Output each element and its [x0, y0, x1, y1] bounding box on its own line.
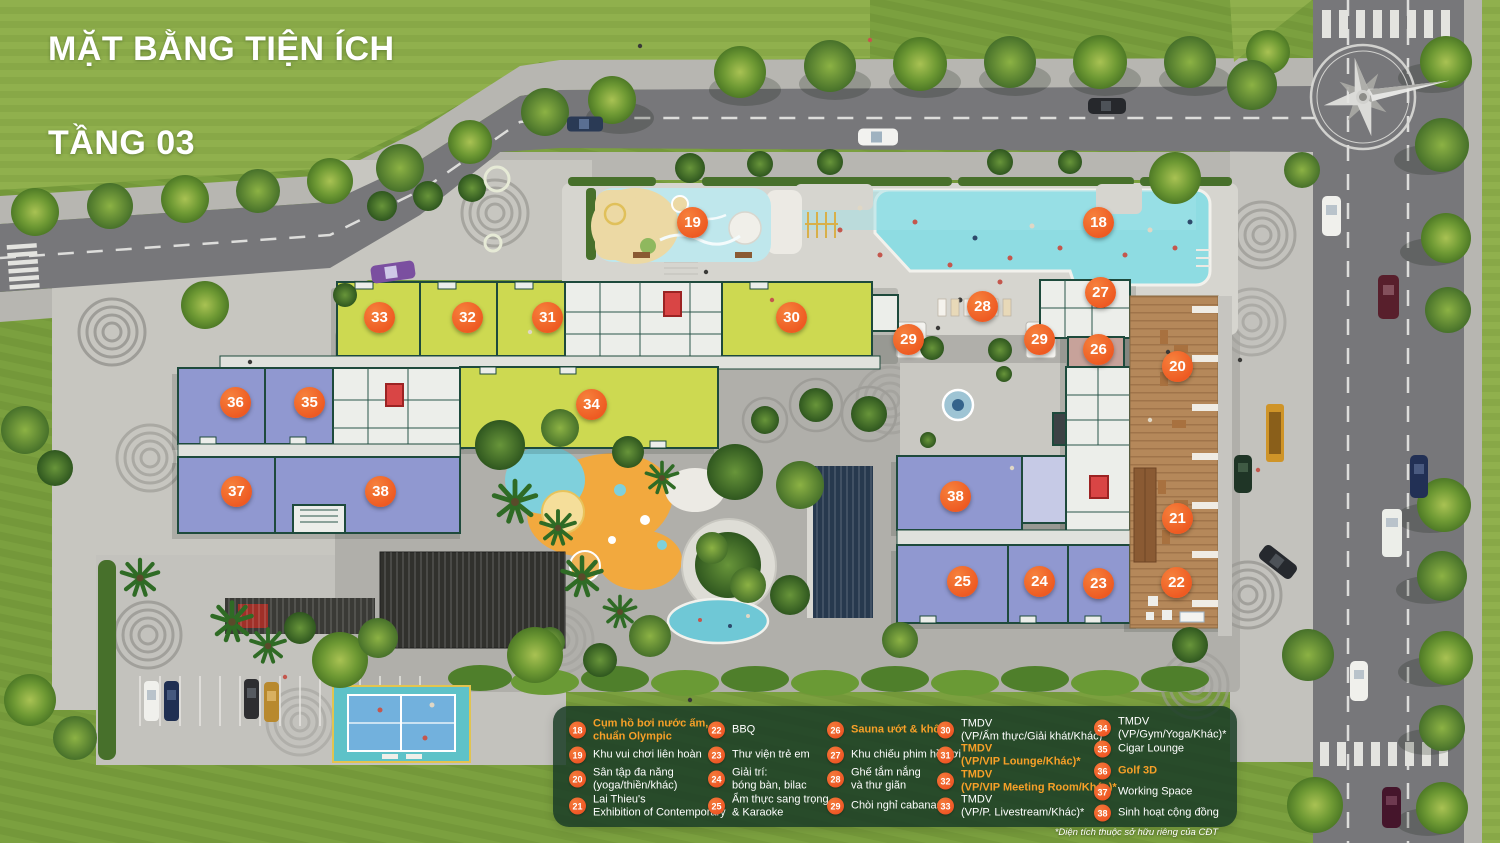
- legend-item-21: 21Lai Thieu'sExhibition of Contemporary: [569, 794, 726, 819]
- legend-label: Giải trí:bóng bàn, bilac: [732, 767, 807, 792]
- plan-marker-30: 30: [776, 302, 807, 333]
- legend-number-badge: 27: [827, 747, 844, 764]
- legend-number-badge: 22: [708, 722, 725, 739]
- plan-marker-25: 25: [947, 566, 978, 597]
- legend-number-badge: 38: [1094, 805, 1111, 822]
- legend-label: TMDV(VP/VIP Lounge/Khác)*: [961, 743, 1081, 768]
- legend-item-24: 24Giải trí:bóng bàn, bilac: [708, 767, 807, 792]
- legend-label: Ẩm thực sang trọng& Karaoke: [732, 794, 829, 819]
- legend-item-38: 38Sinh hoạt cộng đồng: [1094, 805, 1219, 822]
- siteplan-poster: MẶT BẰNG TIỆN ÍCH TẦNG 03 19182728292926…: [0, 0, 1500, 843]
- core-west: [565, 282, 722, 358]
- corridor-east: [897, 530, 1130, 545]
- legend-label: Khu vui chơi liên hoàn: [593, 749, 702, 762]
- legend-item-18: 18Cụm hồ bơi nước ấm,chuẩn Olympic: [569, 718, 708, 743]
- legend-number-badge: 21: [569, 798, 586, 815]
- plan-marker-36: 36: [220, 387, 251, 418]
- legend-item-20: 20Sân tập đa năng(yoga/thiền/khác): [569, 767, 677, 792]
- bus: [1266, 404, 1284, 462]
- page-title: MẶT BẰNG TIỆN ÍCH TẦNG 03: [48, 26, 395, 167]
- plan-marker-28: 28: [967, 291, 998, 322]
- plan-marker-23: 23: [1083, 568, 1114, 599]
- plan-marker-27: 27: [1085, 277, 1116, 308]
- plan-marker-22: 22: [1161, 567, 1192, 598]
- legend-number-badge: 32: [937, 773, 954, 790]
- legend-number-badge: 29: [827, 798, 844, 815]
- legend-item-23: 23Thư viện trẻ em: [708, 747, 810, 764]
- legend-label: Golf 3D: [1118, 765, 1157, 778]
- legend-item-22: 22BBQ: [708, 722, 755, 739]
- legend-label: Lai Thieu'sExhibition of Contemporary: [593, 794, 726, 819]
- elevator-red: [1090, 476, 1108, 498]
- legend-item-26: 26Sauna ướt & khô: [827, 722, 940, 739]
- legend-footnote: *Diện tích thuộc sở hữu riêng của CĐT: [950, 827, 1218, 838]
- tennis-court: [333, 686, 470, 762]
- plan-marker-31: 31: [532, 302, 563, 333]
- legend-number-badge: 36: [1094, 763, 1111, 780]
- legend-label: TMDV(VP/Ẩm thực/Giải khát/Khác)*: [961, 718, 1107, 743]
- legend-label: TMDV(VP/Gym/Yoga/Khác)*: [1118, 716, 1226, 741]
- plan-marker-18: 18: [1083, 207, 1114, 238]
- legend-number-badge: 35: [1094, 741, 1111, 758]
- plan-marker-33: 33: [364, 302, 395, 333]
- legend-number-badge: 37: [1094, 784, 1111, 801]
- plan-marker-37: 37: [221, 476, 252, 507]
- legend-item-32: 32TMDV(VP/VIP Meeting Room/Khác)*: [937, 769, 1117, 794]
- legend-label: Sauna ướt & khô: [851, 724, 940, 737]
- legend-number-badge: 20: [569, 771, 586, 788]
- legend-item-34: 34TMDV(VP/Gym/Yoga/Khác)*: [1094, 716, 1226, 741]
- legend-item-35: 35Cigar Lounge: [1094, 741, 1184, 758]
- legend-label: Sân tập đa năng(yoga/thiền/khác): [593, 767, 677, 792]
- plan-marker-26: 26: [1083, 334, 1114, 365]
- legend-label: Working Space: [1118, 786, 1192, 799]
- legend-item-19: 19Khu vui chơi liên hoàn: [569, 747, 702, 764]
- legend-item-25: 25Ẩm thực sang trọng& Karaoke: [708, 794, 829, 819]
- legend-item-37: 37Working Space: [1094, 784, 1192, 801]
- plan-marker-38: 38: [940, 481, 971, 512]
- plan-marker-29: 29: [893, 324, 924, 355]
- legend-number-badge: 34: [1094, 720, 1111, 737]
- legend-number-badge: 33: [937, 798, 954, 815]
- elevator-red: [664, 292, 681, 316]
- legend-number-badge: 25: [708, 798, 725, 815]
- plan-marker-19: 19: [677, 207, 708, 238]
- legend-number-badge: 31: [937, 747, 954, 764]
- plan-marker-34: 34: [576, 389, 607, 420]
- legend-number-badge: 24: [708, 771, 725, 788]
- legend-label: Sinh hoạt cộng đồng: [1118, 807, 1219, 820]
- legend-label: TMDV(VP/P. Livestream/Khác)*: [961, 794, 1084, 819]
- title-line-1: MẶT BẰNG TIỆN ÍCH: [48, 30, 395, 68]
- legend-item-30: 30TMDV(VP/Ẩm thực/Giải khát/Khác)*: [937, 718, 1107, 743]
- legend-number-badge: 28: [827, 771, 844, 788]
- legend-label: BBQ: [732, 724, 755, 737]
- plan-marker-38: 38: [365, 476, 396, 507]
- legend-item-33: 33TMDV(VP/P. Livestream/Khác)*: [937, 794, 1084, 819]
- legend-item-31: 31TMDV(VP/VIP Lounge/Khác)*: [937, 743, 1081, 768]
- legend-label: Chòi nghỉ cabanas: [851, 800, 942, 813]
- legend-label: Ghế tắm nắngvà thư giãn: [851, 767, 921, 792]
- legend-item-36: 36Golf 3D: [1094, 763, 1157, 780]
- plan-marker-24: 24: [1024, 566, 1055, 597]
- core-west-2: [333, 368, 460, 455]
- legend-label: Cụm hồ bơi nước ấm,chuẩn Olympic: [593, 718, 708, 743]
- legend-number-badge: 23: [708, 747, 725, 764]
- plan-marker-29: 29: [1024, 324, 1055, 355]
- room-lavender: [1022, 456, 1066, 523]
- legend-number-badge: 19: [569, 747, 586, 764]
- legend-item-29: 29Chòi nghỉ cabanas: [827, 798, 942, 815]
- title-line-2: TẦNG 03: [48, 124, 195, 162]
- elevator-red: [386, 384, 403, 406]
- legend-item-28: 28Ghế tắm nắngvà thư giãn: [827, 767, 921, 792]
- plan-marker-20: 20: [1162, 351, 1193, 382]
- legend-label: Cigar Lounge: [1118, 743, 1184, 756]
- legend-label: Thư viện trẻ em: [732, 749, 810, 762]
- legend-number-badge: 18: [569, 722, 586, 739]
- plan-marker-32: 32: [452, 302, 483, 333]
- plan-marker-21: 21: [1162, 503, 1193, 534]
- plan-marker-35: 35: [294, 387, 325, 418]
- legend-number-badge: 26: [827, 722, 844, 739]
- legend-number-badge: 30: [937, 722, 954, 739]
- corridor-west-2: [178, 444, 460, 457]
